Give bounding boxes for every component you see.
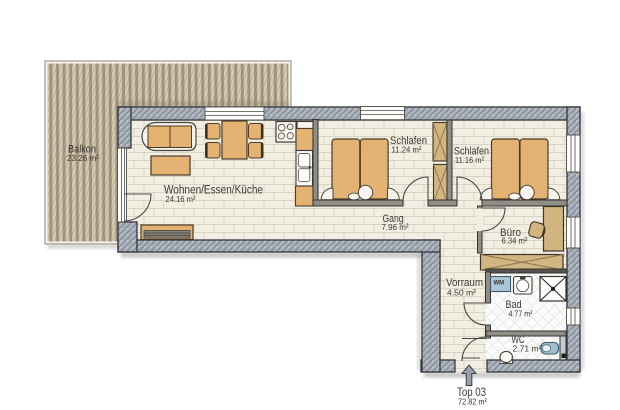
svg-text:23.26 m²: 23.26 m² [67, 153, 99, 163]
svg-text:7.96 m²: 7.96 m² [382, 222, 409, 232]
svg-text:4.50 m²: 4.50 m² [447, 288, 476, 298]
svg-text:11.16 m²: 11.16 m² [455, 155, 484, 165]
svg-text:WM: WM [494, 281, 505, 287]
svg-text:72.82 m²: 72.82 m² [458, 397, 487, 407]
svg-text:4.77 m²: 4.77 m² [509, 309, 533, 319]
svg-text:24.16 m²: 24.16 m² [166, 194, 196, 204]
svg-text:6.34 m²: 6.34 m² [502, 236, 528, 246]
svg-text:11.24 m²: 11.24 m² [392, 145, 422, 155]
svg-text:2.71 m²: 2.71 m² [513, 344, 542, 354]
